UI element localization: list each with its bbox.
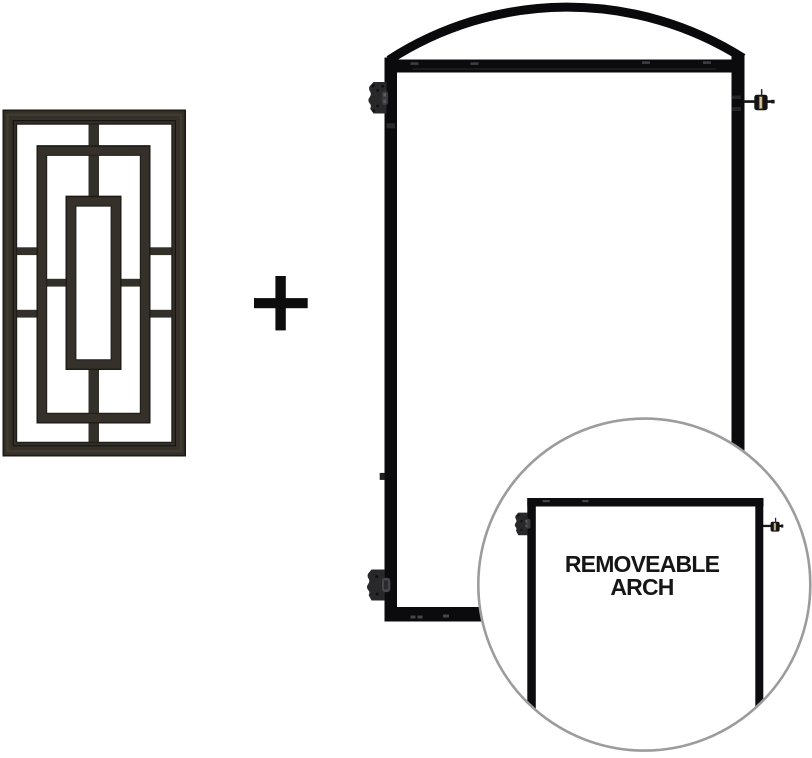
svg-text:ARCH: ARCH <box>610 574 673 600</box>
